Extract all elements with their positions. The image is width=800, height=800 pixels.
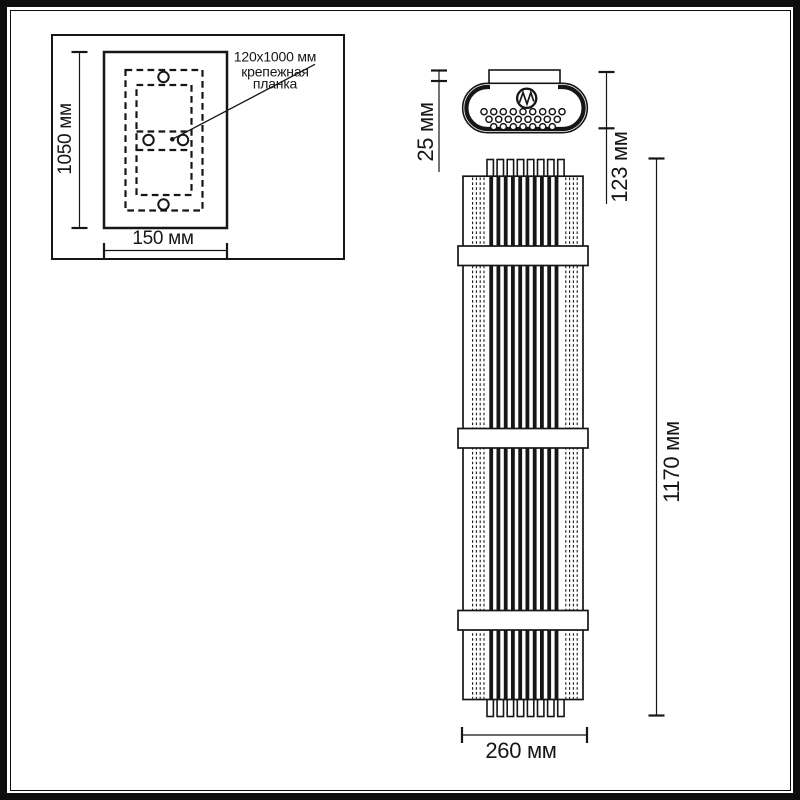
mounting-bracket-tab [489, 70, 560, 84]
band-bottom [458, 611, 588, 631]
mounting-strip-callout: 120x1000 мм крепежная планка [234, 50, 316, 90]
plate-width-label: 150 мм [132, 228, 193, 250]
callout-size-text: 120x1000 мм [234, 50, 316, 63]
screw-hole-middle-left [143, 135, 153, 145]
fixture-height-label: 1170 мм [659, 421, 685, 503]
lamp-front-view [458, 159, 665, 744]
band-middle [458, 429, 588, 449]
fixture-width-label: 260 мм [485, 738, 556, 764]
screw-hole-bottom [158, 199, 168, 209]
top-prongs [487, 160, 564, 178]
bracket-depth-label: 25 мм [413, 102, 439, 161]
fixture-depth-label: 123 мм [607, 131, 633, 202]
lamp-dimension-drawing: 1050 мм 150 мм 120x1000 мм крепежная пла… [0, 0, 800, 800]
drawing-svg [0, 0, 800, 800]
screw-hole-top [158, 72, 168, 82]
band-top [458, 246, 588, 266]
plate-height-label: 1050 мм [55, 103, 77, 175]
screw-hole-middle-right [178, 135, 188, 145]
callout-name-line2: планка [234, 77, 316, 90]
